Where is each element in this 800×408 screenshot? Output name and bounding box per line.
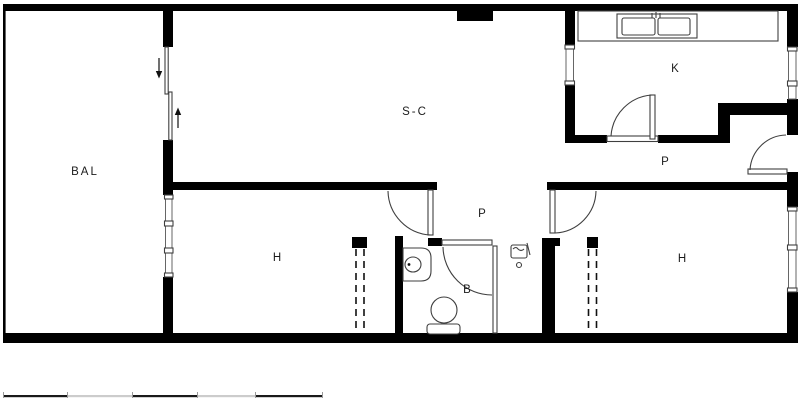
door-leaf-bathroom bbox=[442, 240, 492, 245]
window-jamb bbox=[788, 288, 798, 292]
wall-step-vertical bbox=[718, 103, 730, 143]
windows bbox=[165, 45, 798, 292]
sink-drain-icon bbox=[408, 263, 411, 266]
wall-bottom bbox=[3, 333, 798, 343]
wall-right-seg3 bbox=[787, 172, 798, 207]
wall-shaft-right bbox=[542, 238, 555, 333]
wall-wardrobe-cap-right bbox=[587, 237, 598, 248]
scale-tick bbox=[67, 392, 68, 398]
window-divider bbox=[788, 245, 798, 250]
wall-balcony-railing bbox=[3, 4, 6, 343]
heater-body-icon bbox=[511, 245, 527, 258]
walls bbox=[3, 4, 798, 343]
kitchen-counter bbox=[578, 11, 778, 41]
wall-kitchen-bottom-seg1 bbox=[565, 135, 607, 143]
scale-tick bbox=[197, 392, 198, 398]
scale-tick bbox=[3, 392, 4, 398]
wall-kitchen-bottom-seg2 bbox=[658, 135, 718, 143]
wall-step-horizontal bbox=[730, 103, 787, 115]
sliding-door-balcony bbox=[156, 47, 181, 140]
wall-chimney-stub bbox=[457, 11, 493, 21]
door-leaf-entrance bbox=[748, 169, 787, 174]
room-label-kitchen: K bbox=[671, 63, 681, 75]
wall-kitchen-left-seg1 bbox=[565, 11, 575, 45]
door-arc-bedroom-left bbox=[388, 191, 431, 235]
wall-kitchen-left-seg2 bbox=[565, 85, 575, 143]
wardrobes bbox=[356, 249, 597, 331]
scale-segment bbox=[3, 395, 67, 397]
wall-wardrobe-cap-left bbox=[352, 237, 367, 248]
window-divider bbox=[165, 221, 174, 226]
bathroom-sink bbox=[403, 248, 431, 281]
wall-right-seg1 bbox=[787, 4, 798, 47]
wall-balcony-seg1 bbox=[163, 11, 173, 47]
window-jamb bbox=[565, 45, 575, 49]
window-jamb bbox=[565, 81, 575, 85]
scale-bar bbox=[3, 392, 323, 398]
scale-tick bbox=[322, 392, 323, 398]
counter-outline bbox=[578, 11, 778, 41]
wall-balcony-seg3 bbox=[163, 277, 173, 335]
window-jamb bbox=[165, 273, 174, 277]
room-label-bathroom: B bbox=[463, 284, 473, 296]
scale-tick bbox=[132, 392, 133, 398]
room-label-bedroom-right: H bbox=[678, 253, 688, 265]
door-arc-entrance bbox=[750, 135, 786, 170]
door-leaf-bedroom-left bbox=[428, 190, 433, 235]
sliding-panel-right bbox=[169, 92, 172, 140]
arrow-down-head-icon bbox=[156, 71, 162, 79]
scale-segment bbox=[132, 395, 197, 397]
scale-tick bbox=[255, 392, 256, 398]
window-jamb bbox=[165, 195, 174, 199]
window-kitchen-right bbox=[789, 47, 797, 99]
room-label-bedroom-left: H bbox=[273, 252, 283, 264]
toilet-bowl bbox=[431, 297, 457, 323]
bathroom-fixtures bbox=[403, 248, 460, 334]
scale-segment bbox=[197, 395, 255, 397]
water-heater bbox=[511, 243, 530, 268]
window-divider bbox=[788, 81, 798, 86]
room-label-living: S-C bbox=[402, 106, 428, 118]
wall-bathroom-left bbox=[395, 236, 403, 333]
scale-segment bbox=[255, 395, 323, 397]
window-divider bbox=[165, 248, 174, 253]
wall-middle-left bbox=[173, 182, 437, 190]
door-arc-bedroom-right bbox=[555, 191, 596, 233]
heater-detail-icon bbox=[513, 248, 524, 251]
wall-bathroom-door-post bbox=[428, 238, 442, 246]
window-kitchen-left bbox=[566, 45, 574, 85]
wall-middle-right bbox=[547, 182, 788, 190]
sink-basin-right bbox=[658, 18, 690, 35]
sliding-panel-left bbox=[165, 47, 168, 94]
door-leaf-bedroom-right bbox=[550, 190, 555, 233]
floor-plan-drawing bbox=[0, 0, 800, 408]
wall-right-seg4 bbox=[787, 292, 798, 337]
window-bedroom-balcony bbox=[166, 195, 173, 277]
window-jamb bbox=[788, 207, 798, 211]
sink-basin-left bbox=[622, 18, 655, 35]
room-label-entry-hall: P bbox=[661, 156, 671, 168]
heater-valve-icon bbox=[517, 263, 522, 268]
floor-plan: BAL S-C K P P H H B bbox=[0, 0, 800, 408]
wall-top bbox=[3, 4, 798, 11]
arrow-up-head-icon bbox=[175, 108, 181, 116]
scale-segment bbox=[67, 395, 132, 397]
window-jamb bbox=[788, 47, 798, 51]
wall-bathroom-right-thin bbox=[493, 246, 497, 333]
room-label-balcony: BAL bbox=[71, 166, 99, 178]
wall-right-seg2 bbox=[787, 99, 798, 135]
room-label-corridor: P bbox=[478, 208, 488, 220]
wall-balcony-seg2 bbox=[163, 140, 173, 195]
door-leaf-kitchen bbox=[650, 95, 655, 139]
toilet-base bbox=[427, 324, 460, 334]
door-arc-kitchen bbox=[611, 95, 652, 136]
